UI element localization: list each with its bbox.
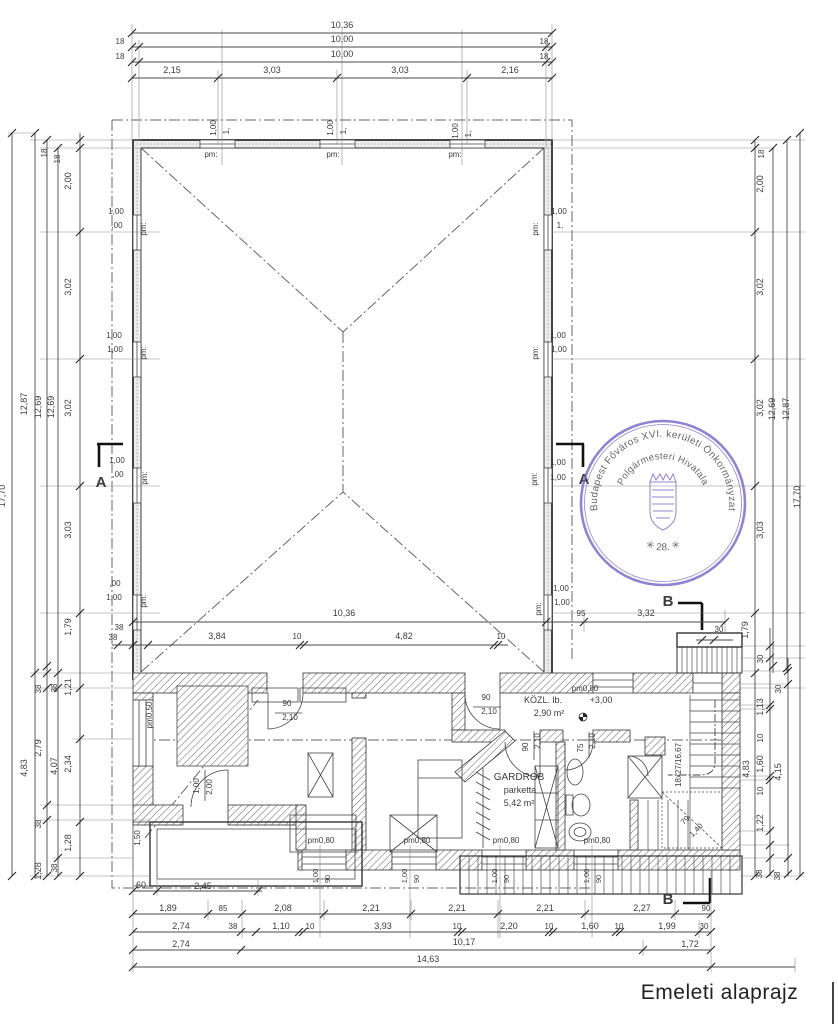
- window-size-label: 1,00: [550, 458, 566, 467]
- dimension-label: 12,69: [33, 396, 43, 419]
- dimension-label: 2,74: [172, 921, 190, 931]
- dimension-label: 2,21: [448, 903, 466, 913]
- dimension-label: 38: [755, 869, 764, 878]
- dimension-label: 18: [540, 37, 549, 46]
- dimension-label: 1,28: [33, 862, 43, 880]
- dimension-label: 18: [116, 37, 125, 46]
- dimension-label: 10: [756, 786, 765, 795]
- window-size-label: ,00: [109, 579, 121, 588]
- stamp-number-text: ✳ 28. ✳: [644, 539, 681, 553]
- window-size-label: 1,00: [106, 593, 122, 602]
- dimension-label: 2,21: [536, 903, 554, 913]
- dimension-label: 10,00: [331, 34, 354, 44]
- dimension-label: 4,07: [49, 757, 59, 775]
- parapet-label: pm:: [326, 150, 339, 159]
- door-size-label: 2,10: [481, 707, 497, 716]
- dimension-label: 18: [40, 148, 49, 157]
- dimension-label: 3,84: [208, 631, 226, 641]
- municipality-stamp: Budapest Főváros XVI. kerületi Önkormány…: [581, 421, 745, 585]
- drawing-title: Emeleti alaprajz: [622, 981, 817, 1005]
- dimension-label: 3,03: [755, 521, 765, 539]
- door-size-label: 1,00: [192, 778, 201, 794]
- window-size-label: 1,00: [326, 120, 335, 136]
- dimension-label: 1,60: [581, 921, 599, 931]
- dimension-label: 3,02: [755, 278, 765, 296]
- parapet-label: pm0,80: [584, 836, 611, 845]
- dimension-label: 38: [115, 623, 124, 632]
- dimension-label: 38: [34, 819, 43, 828]
- dimension-label: 2,16: [501, 65, 519, 75]
- dimension-label: 3,03: [391, 65, 409, 75]
- window-size-label: 90: [594, 875, 603, 883]
- parapet-label: pm:: [534, 602, 543, 615]
- window-size-label: 90: [323, 875, 332, 883]
- dimension-label: 1,72: [681, 939, 699, 949]
- dimension-label: 30: [774, 684, 783, 693]
- dimension-label: 10: [497, 632, 506, 641]
- window-size-label: 1,00: [109, 456, 125, 465]
- dimension-label: 1,50: [133, 830, 142, 846]
- room-finish-label: parketta: [504, 785, 537, 795]
- parapet-label: pm:: [448, 150, 461, 159]
- dimension-label: 3,03: [263, 65, 281, 75]
- window-size-label: 1,00: [551, 345, 567, 354]
- window-size-label: 1,: [557, 221, 564, 230]
- dimension-label: 1,79: [740, 621, 750, 639]
- dimension-label: 18: [757, 149, 766, 158]
- floor-plan-canvas: 10,361810,00181810,00182,153,033,032,161…: [0, 0, 838, 1024]
- dimension-label: 1,22: [755, 814, 765, 832]
- dimension-label: 2,79: [33, 739, 43, 757]
- dimension-label: 60: [136, 880, 146, 890]
- dimension-label: 10,36: [333, 608, 356, 618]
- dimension-label: 18: [53, 154, 62, 163]
- dimension-label: 1,89: [159, 903, 177, 913]
- dimension-label: 3,03: [63, 521, 73, 539]
- door-size-label: 2,00: [205, 779, 214, 795]
- door-size-label: 90: [521, 742, 530, 751]
- window-size-label: 1,00: [209, 120, 218, 136]
- door-size-label: 2,10: [588, 733, 597, 749]
- dimension-label: 30: [756, 654, 765, 663]
- dimension-label: 12,87: [781, 398, 791, 421]
- dimension-label: 1,60: [755, 755, 765, 773]
- dimension-label: 2,45: [194, 881, 212, 891]
- window-size-label: 1,: [222, 128, 231, 135]
- dimension-label: 2,27: [633, 903, 651, 913]
- dimension-label: 2,20: [500, 921, 518, 931]
- window-size-label: 90: [502, 875, 511, 883]
- dimension-label: 85: [219, 904, 228, 913]
- room-name-label: GARDROB: [494, 772, 545, 783]
- door-size-label: 2,10: [533, 733, 542, 749]
- dimension-label: 2,34: [63, 755, 73, 773]
- roof-outline: [112, 120, 722, 888]
- window-size-label: ,00: [112, 470, 124, 479]
- dimension-label: 95: [577, 609, 586, 618]
- level-marker: [579, 713, 587, 721]
- stair-label: 18x27/16,67: [674, 742, 683, 787]
- dimension-label: 17,70: [0, 485, 7, 508]
- dimension-label: 2,00: [63, 172, 73, 190]
- dimension-label: 10,36: [331, 20, 354, 30]
- window-size-label: 1,00: [108, 207, 124, 216]
- dimension-label: 1,79: [63, 618, 73, 636]
- dimension-label: 17,70: [792, 486, 802, 509]
- parapet-label: pm0,80: [493, 836, 520, 845]
- parapet-label: pm:: [139, 346, 148, 359]
- dimension-label: 4,83: [19, 759, 29, 777]
- parapet-label: pm:: [204, 150, 217, 159]
- dimension-label: 3,02: [63, 399, 73, 417]
- dimension-label: 30: [715, 625, 724, 634]
- parapet-label: pm0,80: [404, 836, 431, 845]
- dimension-label: 3,93: [374, 921, 392, 931]
- dimension-label: 18: [116, 52, 125, 61]
- section-marker-label: A: [96, 474, 107, 491]
- dimension-label: 3,02: [755, 399, 765, 417]
- window-size-label: 1,00: [553, 584, 569, 593]
- svg-text:Budapest Főváros XVI. kerületi: Budapest Főváros XVI. kerületi Önkormány…: [589, 429, 737, 512]
- dimension-label: 2,21: [362, 903, 380, 913]
- dimension-label: 10: [756, 733, 765, 742]
- dimension-label: 3,02: [63, 278, 73, 296]
- labels: 10,361810,00181810,00182,153,033,032,161…: [0, 20, 802, 964]
- dimension-label: 1,28: [63, 834, 73, 852]
- dimension-label: 10: [293, 632, 302, 641]
- dimension-lines: [8, 29, 804, 971]
- dimension-label: 2,00: [755, 175, 765, 193]
- dimension-label: 14,63: [417, 954, 440, 964]
- dimension-label: 90: [702, 904, 711, 913]
- dimension-label: 2,15: [163, 65, 181, 75]
- dimension-label: 2,08: [274, 903, 292, 913]
- dimension-label: 1,99: [658, 921, 676, 931]
- door-size-label: 90: [482, 693, 491, 702]
- extension-lines: [8, 24, 805, 972]
- dimension-label: 38: [773, 871, 782, 880]
- door-size-label: 90: [283, 699, 292, 708]
- parapet-label: pm:: [140, 471, 149, 484]
- dimension-label: 12,87: [19, 393, 29, 416]
- dimension-label: 30: [700, 922, 709, 931]
- dimension-label: 10: [545, 922, 554, 931]
- dimension-label: 38: [229, 922, 238, 931]
- parapet-label: pm:: [530, 472, 539, 485]
- window-size-label: ,00: [111, 221, 123, 230]
- level-label: +3,00: [590, 695, 613, 705]
- window-size-label: 1,: [339, 128, 348, 135]
- window-size-label: 1,00: [400, 869, 409, 884]
- dimension-label: 10,17: [453, 937, 476, 947]
- window-size-label: 1,00: [107, 345, 123, 354]
- window-size-label: 1,00: [106, 331, 122, 340]
- dimension-label: 4,15: [773, 763, 783, 781]
- dimension-label: 38: [50, 683, 59, 692]
- parapet-label: pm:: [139, 594, 148, 607]
- dimension-label: 4,82: [395, 631, 413, 641]
- door-size-label: 75: [576, 743, 585, 752]
- section-marker-label: B: [663, 891, 674, 908]
- parapet-label: pm:: [531, 222, 540, 235]
- room-name-label: KÖZL. lb.: [524, 695, 562, 705]
- parapet-label: pm:: [531, 346, 540, 359]
- dimension-label: 1,10: [272, 921, 290, 931]
- dimension-label: 38: [34, 684, 43, 693]
- window-size-label: 1,00: [311, 869, 320, 884]
- room-area-label: 2,90 m²: [534, 708, 565, 718]
- furniture: [177, 686, 662, 852]
- dimension-label: 12,69: [767, 398, 777, 421]
- dimension-label: 1,13: [755, 698, 765, 716]
- dimension-label: 38: [50, 863, 59, 872]
- parapet-label: pm0,80: [572, 684, 599, 693]
- dimension-label: 10: [306, 922, 315, 931]
- stamp-outer-text: Budapest Főváros XVI. kerületi Önkormány…: [589, 429, 737, 512]
- section-marker-label: B: [663, 593, 674, 610]
- window-size-label: 1,00: [550, 473, 566, 482]
- floor-plan-page: 10,361810,00181810,00182,153,033,032,161…: [0, 0, 838, 1024]
- stamp-emblem: [650, 474, 676, 530]
- window-size-label: 1,00: [554, 598, 570, 607]
- dimension-label: 12,69: [46, 396, 56, 419]
- dimension-label: 38: [109, 633, 118, 642]
- dimension-label: 10,00: [331, 49, 354, 59]
- dimension-label: 3,32: [637, 608, 655, 618]
- dimension-label: 4,83: [741, 760, 751, 778]
- parapet-label: pm0,50: [145, 701, 154, 728]
- parapet-label: pm:: [139, 222, 148, 235]
- window-size-label: 1,00: [582, 869, 591, 884]
- window-size-label: 1,00: [451, 123, 460, 139]
- dimension-label: 2,74: [172, 939, 190, 949]
- parapet-label: pm0,80: [308, 836, 335, 845]
- dimension-label: 18: [540, 52, 549, 61]
- dimension-label: 10: [453, 922, 462, 931]
- balcony: [677, 633, 742, 673]
- window-size-label: 1,: [464, 131, 473, 138]
- dimension-label: 1,21: [63, 678, 73, 696]
- window-size-label: 90: [412, 875, 421, 883]
- svg-text:✳ 28. ✳: ✳ 28. ✳: [644, 539, 681, 553]
- window-size-label: 1,00: [490, 869, 499, 884]
- room-area-label: 5,42 m²: [504, 798, 535, 808]
- dimension-label: 10: [615, 922, 624, 931]
- window-size-label: 1,00: [550, 331, 566, 340]
- window-size-label: 1,00: [551, 207, 567, 216]
- door-size-label: 2,10: [282, 713, 298, 722]
- titleblock-border: [832, 982, 834, 1024]
